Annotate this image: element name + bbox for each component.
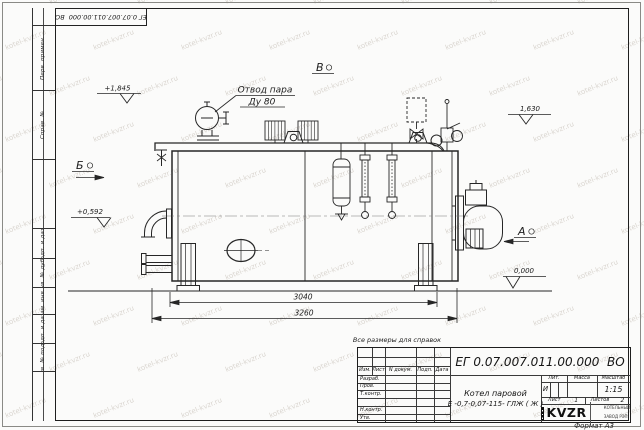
- logo-caption-line1: КОТЕЛЬНЫЙ: [604, 405, 630, 410]
- steam-outlet-label-line2: Ду 80: [248, 98, 276, 108]
- burner-icon: [452, 180, 503, 250]
- product-name-line2: Е -0,7-0,07-115- ГЛЖ ( Ж ): [448, 401, 543, 408]
- kvzr-logo-text: KVZR: [547, 407, 587, 420]
- left-fitting-icons: [141, 150, 172, 275]
- tb-row-razrab: Разраб.: [358, 375, 387, 383]
- boiler-body: [155, 143, 468, 281]
- tb-row-prov: Пров.: [358, 383, 387, 390]
- tb-header-izm: Изм.: [358, 366, 372, 375]
- tb-lit-label: Лит.: [541, 375, 567, 382]
- drawing-sheet: kotel-kvzr.rukotel-kvzr.rukotel-kvzr.ruk…: [0, 0, 644, 430]
- support-legs: [177, 244, 437, 292]
- elevation-0000-value: 0,000: [514, 267, 535, 275]
- tb-header-list: Лист: [372, 366, 385, 375]
- tb-mass-label: Масса: [567, 375, 597, 382]
- elevation-mark-1845: [97, 94, 141, 104]
- tb-logo-cell: KVZR КОТЕЛЬНЫЙ ЗАВОД РЭП: [541, 404, 630, 422]
- format-label: Формат А3: [550, 422, 638, 430]
- elevation-mark-0000: [503, 277, 546, 289]
- elevation-0592-value: +0,592: [77, 208, 103, 216]
- tb-scale-label: Масштаб: [597, 375, 630, 382]
- tb-scale-value: 1:15: [597, 382, 630, 397]
- steam-outlet-valve-icon: [196, 102, 230, 140]
- tb-header-docnum: N докум.: [385, 366, 416, 375]
- tb-row-nkontr: Н.контр.: [358, 406, 387, 414]
- steam-outlet-label-line1: Отвод пара: [238, 86, 293, 96]
- view-b-letter: Б: [76, 159, 84, 172]
- kvzr-logo-icon: [541, 407, 544, 420]
- view-v-letter: В: [316, 61, 324, 74]
- tb-lit-value: И: [541, 382, 550, 397]
- elevation-mark-1630: [508, 115, 551, 125]
- manhole-icon: [224, 240, 272, 262]
- dim-3260-value: 3260: [294, 309, 313, 318]
- tb-row-tkontr: Т.контр.: [358, 390, 387, 398]
- logo-caption-line2: ЗАВОД РЭП: [604, 414, 628, 419]
- view-a-letter: А: [517, 225, 526, 238]
- dim-3040-value: 3040: [293, 293, 312, 302]
- tb-row-utv: Утв.: [358, 414, 387, 422]
- tb-sheet-cell: Лист 1: [541, 397, 585, 404]
- tb-product-name: Котел паровой Е -0,7-0,07-115- ГЛЖ ( Ж ): [450, 375, 541, 422]
- reference-note: Все размеры для справок: [347, 336, 447, 344]
- product-name-line1: Котел паровой: [464, 390, 527, 398]
- tb-header-data: Дата: [434, 366, 450, 375]
- elevation-mark-0592: [71, 218, 111, 228]
- tb-header-podp: Подп.: [416, 366, 434, 375]
- elevation-1630-value: 1,630: [520, 105, 541, 113]
- elevation-1845-value: +1,845: [105, 85, 131, 93]
- sheet-label: Лист: [548, 398, 561, 403]
- level-gauge-icons: [333, 143, 397, 220]
- sheet-number: 1: [574, 398, 578, 404]
- title-block: Изм. Лист N докум. Подп. Дата Разраб. Пр…: [357, 347, 631, 423]
- tb-doc-number: ЕГ 0.07.007.011.00.000 ВО: [450, 348, 630, 375]
